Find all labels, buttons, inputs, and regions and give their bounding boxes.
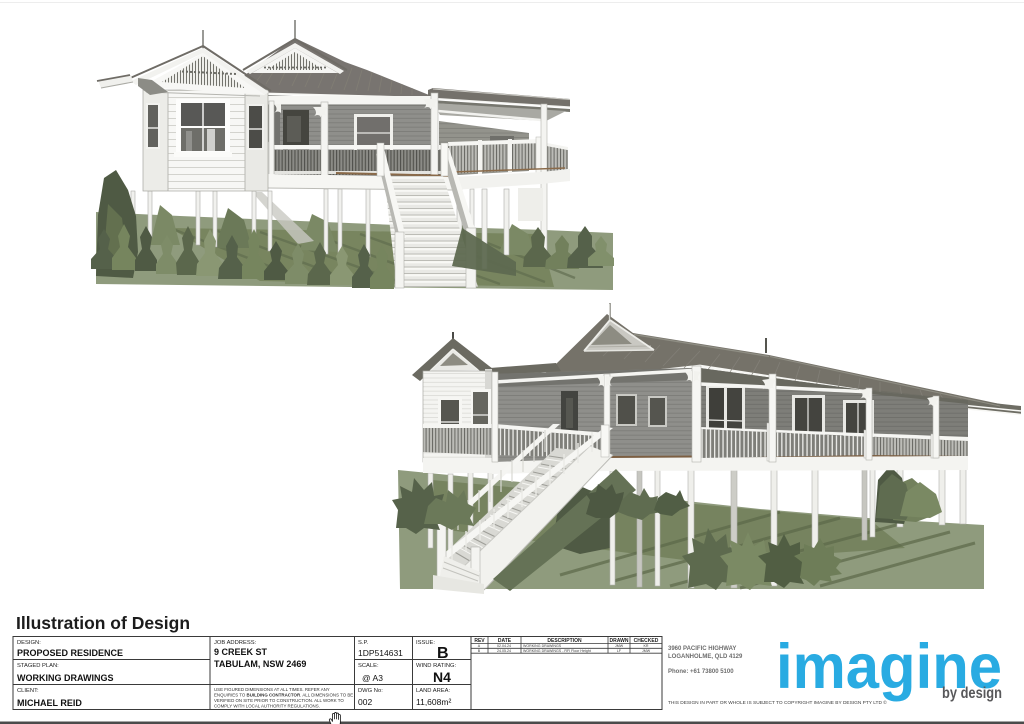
svg-text:JMW: JMW (615, 644, 624, 648)
svg-text:Phone: +61 73800 5100: Phone: +61 73800 5100 (668, 669, 734, 675)
svg-text:JMW: JMW (642, 649, 651, 653)
svg-text:3960 PACIFIC HIGHWAY: 3960 PACIFIC HIGHWAY (668, 646, 736, 652)
svg-text:WORKING DRAWINGS - RFI Floor H: WORKING DRAWINGS - RFI Floor Height (523, 649, 591, 653)
svg-text:B: B (478, 649, 481, 653)
svg-text:@ A3: @ A3 (362, 673, 383, 683)
svg-text:CLIENT:: CLIENT: (17, 688, 39, 694)
svg-text:CHECKED: CHECKED (634, 638, 659, 644)
svg-text:ISSUE:: ISSUE: (416, 640, 435, 646)
svg-text:WORKING DRAWINGS: WORKING DRAWINGS (17, 673, 114, 683)
svg-text:MICHAEL REID: MICHAEL REID (17, 698, 82, 708)
svg-text:Illustration of Design: Illustration of Design (16, 613, 190, 633)
svg-text:WORKING DRAWINGS: WORKING DRAWINGS (523, 644, 562, 648)
svg-text:LF: LF (617, 649, 622, 653)
svg-text:TABULAM, NSW 2469: TABULAM, NSW 2469 (214, 659, 306, 669)
svg-text:002: 002 (358, 697, 372, 707)
svg-text:LAND AREA:: LAND AREA: (416, 688, 451, 694)
svg-text:PROPOSED RESIDENCE: PROPOSED RESIDENCE (17, 648, 123, 658)
svg-text:REV: REV (474, 638, 485, 644)
svg-text:1DP514631: 1DP514631 (358, 648, 403, 658)
svg-text:DATE: DATE (498, 638, 512, 644)
svg-text:DESCRIPTION: DESCRIPTION (547, 638, 582, 644)
svg-text:STAGED PLAN:: STAGED PLAN: (17, 663, 59, 669)
svg-text:KR: KR (644, 644, 649, 648)
svg-text:LOGANHOLME, QLD 4129: LOGANHOLME, QLD 4129 (668, 654, 743, 660)
svg-text:JOB ADDRESS:: JOB ADDRESS: (214, 640, 257, 646)
svg-text:A: A (478, 644, 481, 648)
svg-text:N4: N4 (433, 669, 451, 685)
svg-text:DWG No:: DWG No: (358, 688, 383, 694)
svg-text:9 CREEK ST: 9 CREEK ST (214, 647, 268, 657)
svg-text:02.04.24: 02.04.24 (497, 644, 511, 648)
svg-text:DESIGN:: DESIGN: (17, 640, 41, 646)
svg-text:B: B (437, 645, 449, 662)
svg-text:ENQUIRIES TO BUILDING CONTRACT: ENQUIRIES TO BUILDING CONTRACTOR. ALL DI… (214, 693, 353, 698)
svg-text:USE FIGURED DIMENSIONS AT ALL: USE FIGURED DIMENSIONS AT ALL TIMES. REF… (214, 687, 330, 692)
svg-text:S.P.: S.P. (358, 640, 369, 646)
svg-text:by design: by design (942, 685, 1002, 702)
svg-text:24.05.24: 24.05.24 (497, 649, 511, 653)
svg-text:VERIFIED ON SITE PRIOR TO CONS: VERIFIED ON SITE PRIOR TO CONSTRUCTION. … (214, 698, 344, 703)
svg-text:DRAWN: DRAWN (610, 638, 629, 644)
svg-text:11,608m²: 11,608m² (416, 697, 451, 707)
svg-text:SCALE:: SCALE: (358, 663, 379, 669)
svg-text:COMPLY WITH LOCAL AUTHORITY RE: COMPLY WITH LOCAL AUTHORITY REGULATIONS. (214, 704, 320, 709)
